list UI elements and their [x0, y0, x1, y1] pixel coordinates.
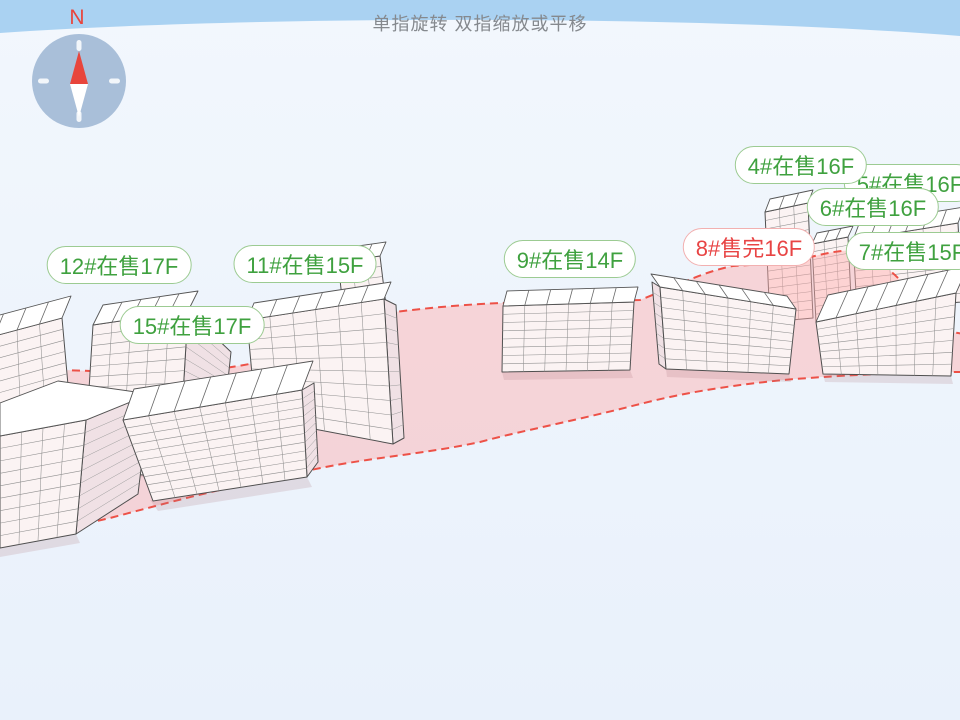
site-map-canvas[interactable] [0, 0, 960, 720]
building-marker-label: 15#在售17F [133, 309, 252, 341]
compass-north-label: N [62, 6, 92, 30]
building-marker-12[interactable]: 12#在售17F [47, 246, 192, 284]
building-marker-9[interactable]: 9#在售14F [504, 240, 636, 278]
compass-tick-north [77, 40, 82, 51]
building-marker-label: 8#售完16F [696, 231, 802, 263]
building-marker-8[interactable]: 8#售完16F [683, 228, 815, 266]
compass-tick-west [38, 79, 49, 84]
building-marker-6[interactable]: 6#在售16F [807, 188, 939, 226]
building-marker-label: 9#在售14F [517, 243, 623, 275]
building-marker-15[interactable]: 15#在售17F [120, 306, 265, 344]
site-map-stage[interactable]: 单指旋转 双指缩放或平移 N 12#在售17F11#在售15F15#在售17F9… [0, 0, 960, 720]
building-marker-label: 11#在售15F [247, 248, 364, 280]
gesture-hint-text: 单指旋转 双指缩放或平移 [0, 10, 960, 36]
building-marker-11[interactable]: 11#在售15F [234, 245, 377, 283]
building-marker-label: 6#在售16F [820, 191, 926, 223]
compass-tick-east [109, 79, 120, 84]
building-marker-label: 7#在售15F [859, 235, 960, 267]
compass[interactable] [32, 34, 126, 128]
building-marker-label: 12#在售17F [60, 249, 179, 281]
building-marker-7[interactable]: 7#在售15F [846, 232, 960, 270]
building-marker-label: 4#在售16F [748, 149, 854, 181]
building-marker-4[interactable]: 4#在售16F [735, 146, 867, 184]
